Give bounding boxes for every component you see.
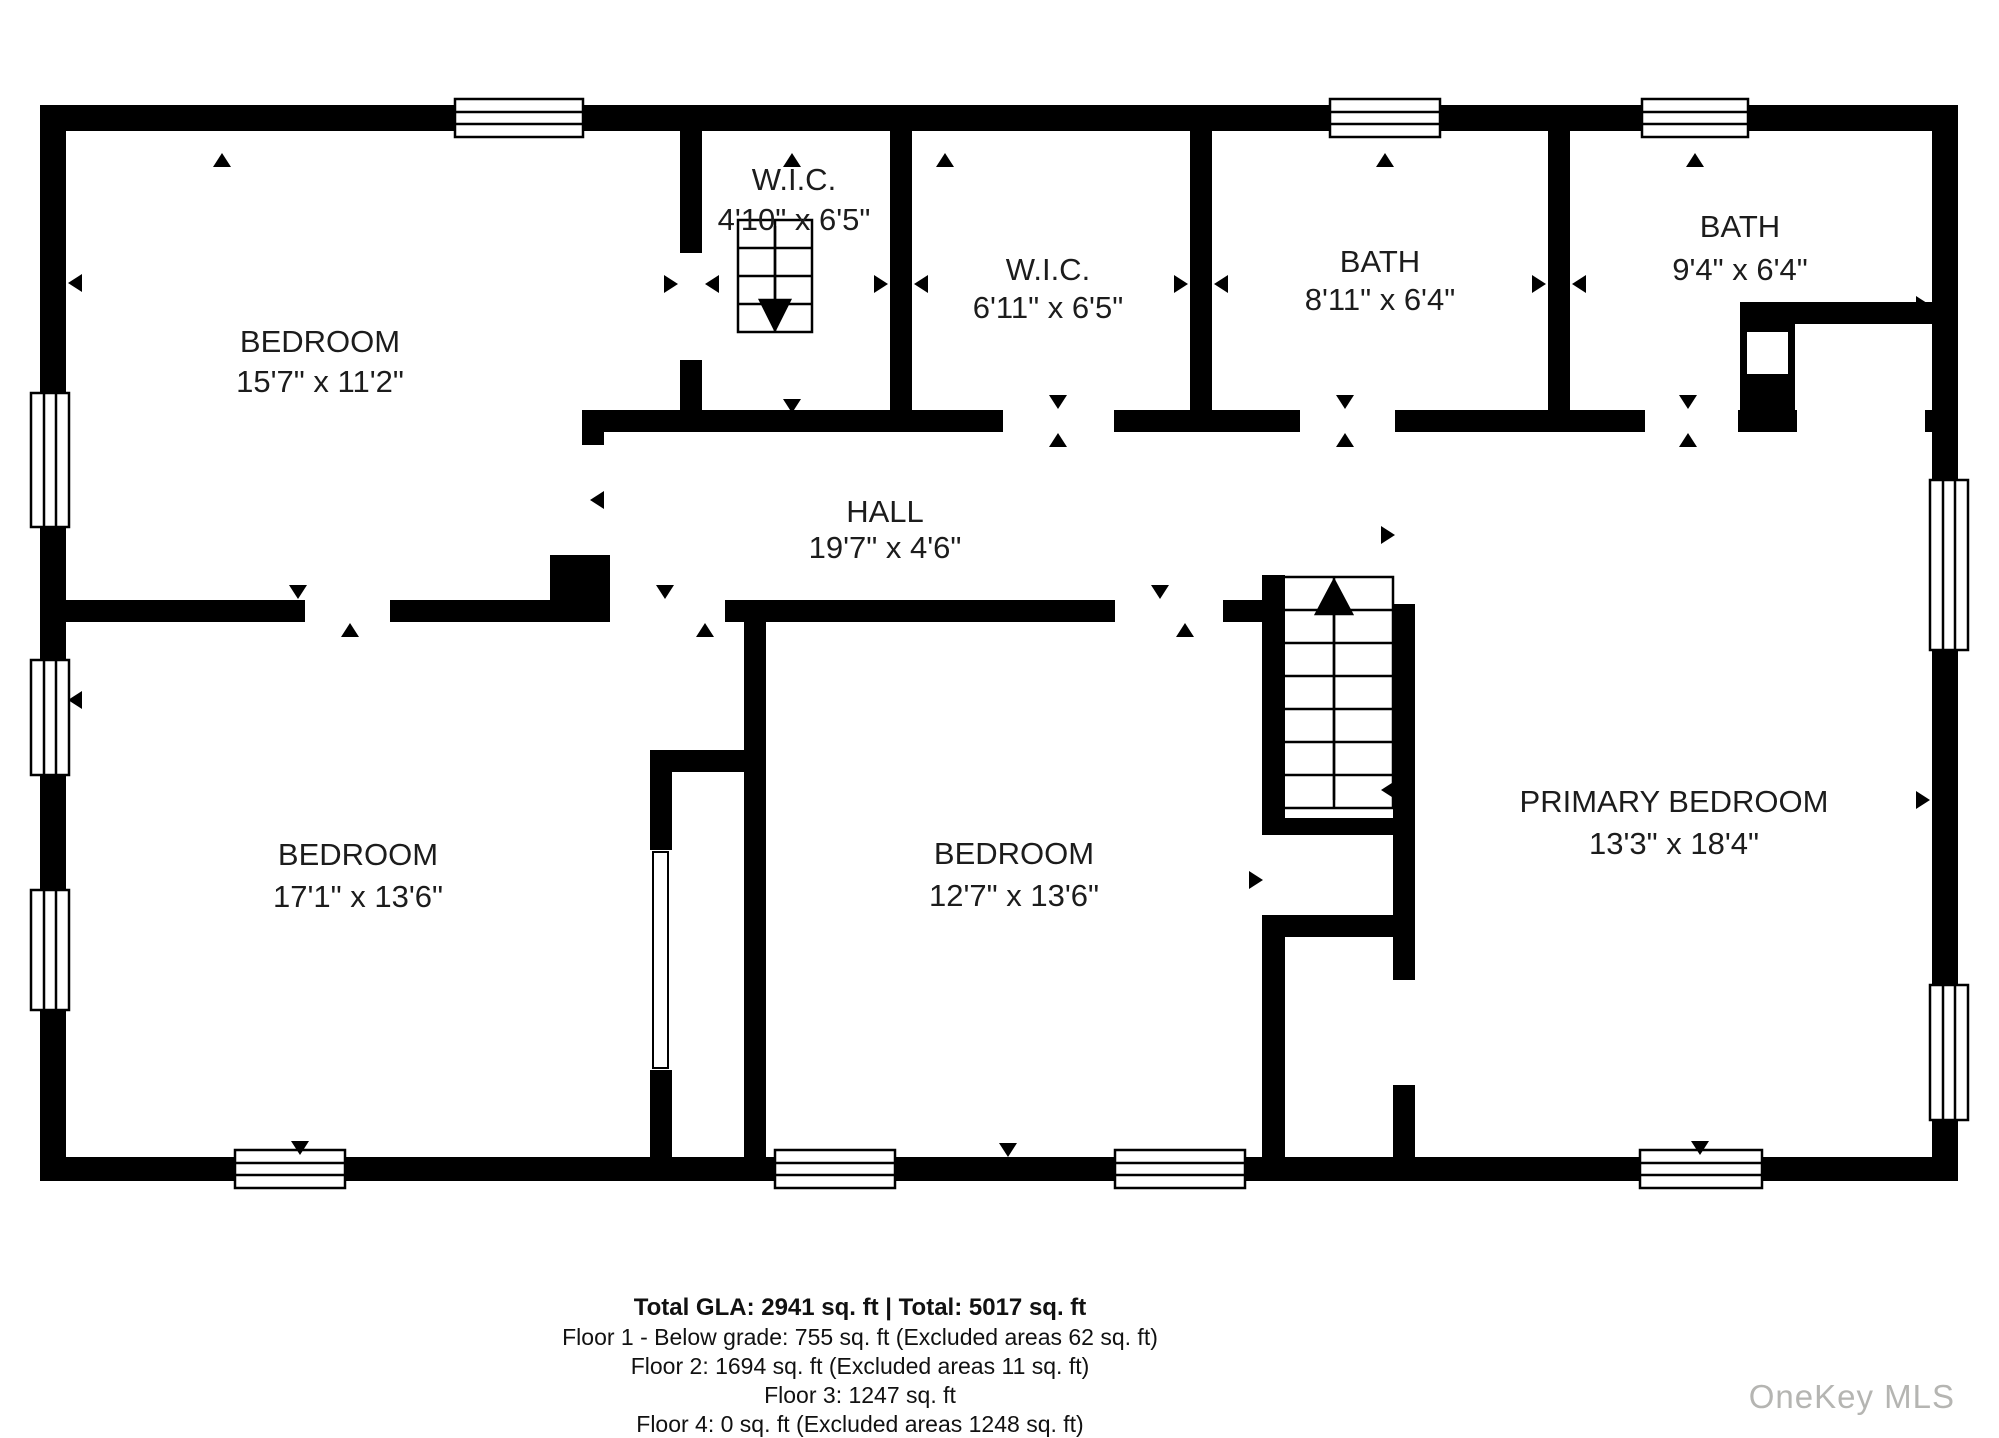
room-label-bath-right: BATH bbox=[1700, 209, 1780, 244]
floor-4-line: Floor 4: 0 sq. ft (Excluded areas 1248 s… bbox=[0, 1410, 1720, 1438]
floor-3-line: Floor 3: 1247 sq. ft bbox=[0, 1381, 1720, 1410]
room-labels: BEDROOM 15'7" x 11'2" W.I.C. 4'10" x 6'5… bbox=[236, 162, 1828, 914]
room-dims-bedroom-bottom-left: 17'1" x 13'6" bbox=[273, 879, 443, 914]
window-icon bbox=[31, 890, 69, 1010]
room-label-bath-left: BATH bbox=[1340, 244, 1420, 279]
staircase-up-icon bbox=[1275, 577, 1393, 808]
window-icon bbox=[31, 393, 69, 527]
room-dims-bath-left: 8'11" x 6'4" bbox=[1305, 282, 1455, 317]
room-label-wic: W.I.C. bbox=[1006, 252, 1090, 287]
floor-1-line: Floor 1 - Below grade: 755 sq. ft (Exclu… bbox=[0, 1323, 1720, 1352]
window-icon bbox=[1930, 480, 1968, 650]
room-dims-hall: 19'7" x 4'6" bbox=[809, 530, 962, 565]
window-icon bbox=[1642, 99, 1748, 137]
room-label-hall: HALL bbox=[846, 494, 924, 529]
room-dims-bath-right: 9'4" x 6'4" bbox=[1672, 252, 1808, 287]
window-icon bbox=[1115, 1150, 1245, 1188]
room-label-bedroom-middle: BEDROOM bbox=[934, 836, 1094, 871]
room-label-wic-stairs: W.I.C. bbox=[752, 162, 836, 197]
room-dims-primary-bedroom: 13'3" x 18'4" bbox=[1589, 826, 1759, 861]
room-dims-bedroom-middle: 12'7" x 13'6" bbox=[929, 878, 1099, 913]
room-dims-wic-stairs: 4'10" x 6'5" bbox=[718, 202, 871, 237]
closet-sliding-door bbox=[653, 852, 668, 1068]
window-icon bbox=[235, 1150, 345, 1188]
room-label-bedroom-bottom-left: BEDROOM bbox=[278, 837, 438, 872]
floor-2-line: Floor 2: 1694 sq. ft (Excluded areas 11 … bbox=[0, 1352, 1720, 1381]
area-summary: Total GLA: 2941 sq. ft | Total: 5017 sq.… bbox=[0, 1292, 1720, 1438]
duct-chase bbox=[1747, 332, 1788, 374]
floor-plan-page: BEDROOM 15'7" x 11'2" W.I.C. 4'10" x 6'5… bbox=[0, 0, 1999, 1438]
room-dims-wic: 6'11" x 6'5" bbox=[973, 290, 1123, 325]
window-icon bbox=[775, 1150, 895, 1188]
walls bbox=[40, 105, 1958, 1181]
window-icon bbox=[455, 99, 583, 137]
window-icon bbox=[1640, 1150, 1762, 1188]
floor-plan-svg: BEDROOM 15'7" x 11'2" W.I.C. 4'10" x 6'5… bbox=[0, 0, 1999, 1438]
window-icon bbox=[1930, 985, 1968, 1120]
room-dims-bedroom-top-left: 15'7" x 11'2" bbox=[236, 364, 404, 399]
window-icon bbox=[31, 660, 69, 775]
room-label-primary-bedroom: PRIMARY BEDROOM bbox=[1520, 784, 1829, 819]
onekey-mls-watermark: OneKey MLS bbox=[1749, 1378, 1955, 1416]
window-icon bbox=[1330, 99, 1440, 137]
total-gla-line: Total GLA: 2941 sq. ft | Total: 5017 sq.… bbox=[0, 1292, 1720, 1323]
room-label-bedroom-top-left: BEDROOM bbox=[240, 324, 400, 359]
